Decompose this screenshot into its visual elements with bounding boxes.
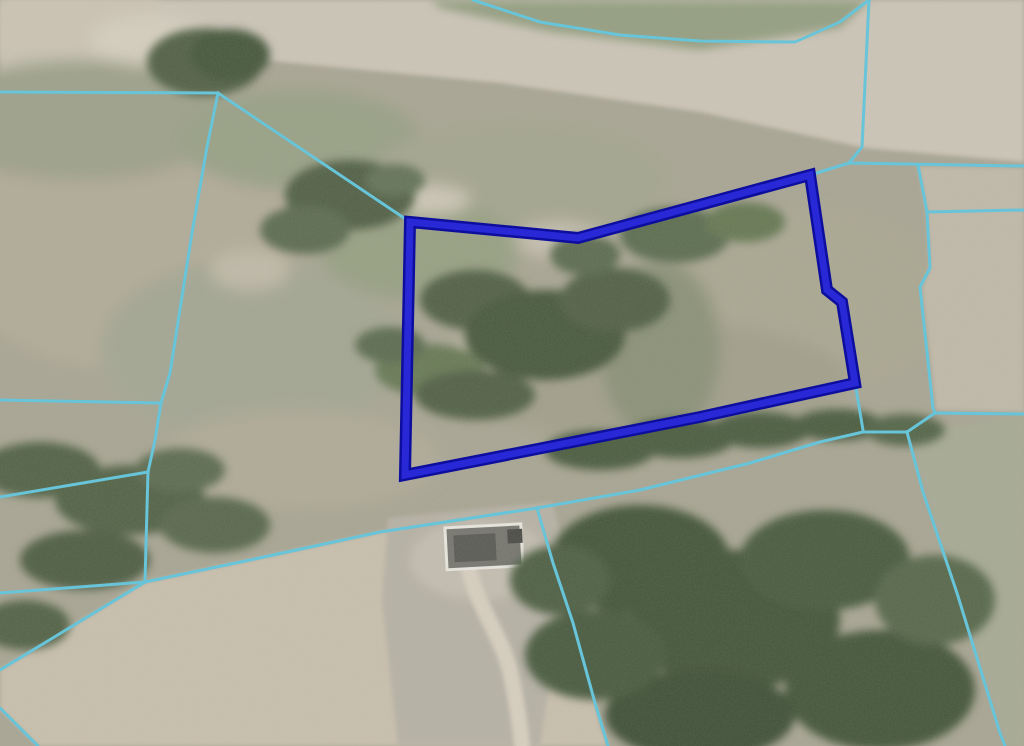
parcel-boundary-line (927, 210, 1024, 212)
aerial-map-viewport[interactable] (0, 0, 1024, 746)
terrain-layer (0, 0, 1024, 746)
parcel-boundary-line (935, 413, 1024, 414)
aerial-imagery-canvas[interactable] (0, 0, 1024, 746)
parcel-boundary-line (0, 92, 218, 93)
photo-grain-overlay (0, 0, 1024, 746)
